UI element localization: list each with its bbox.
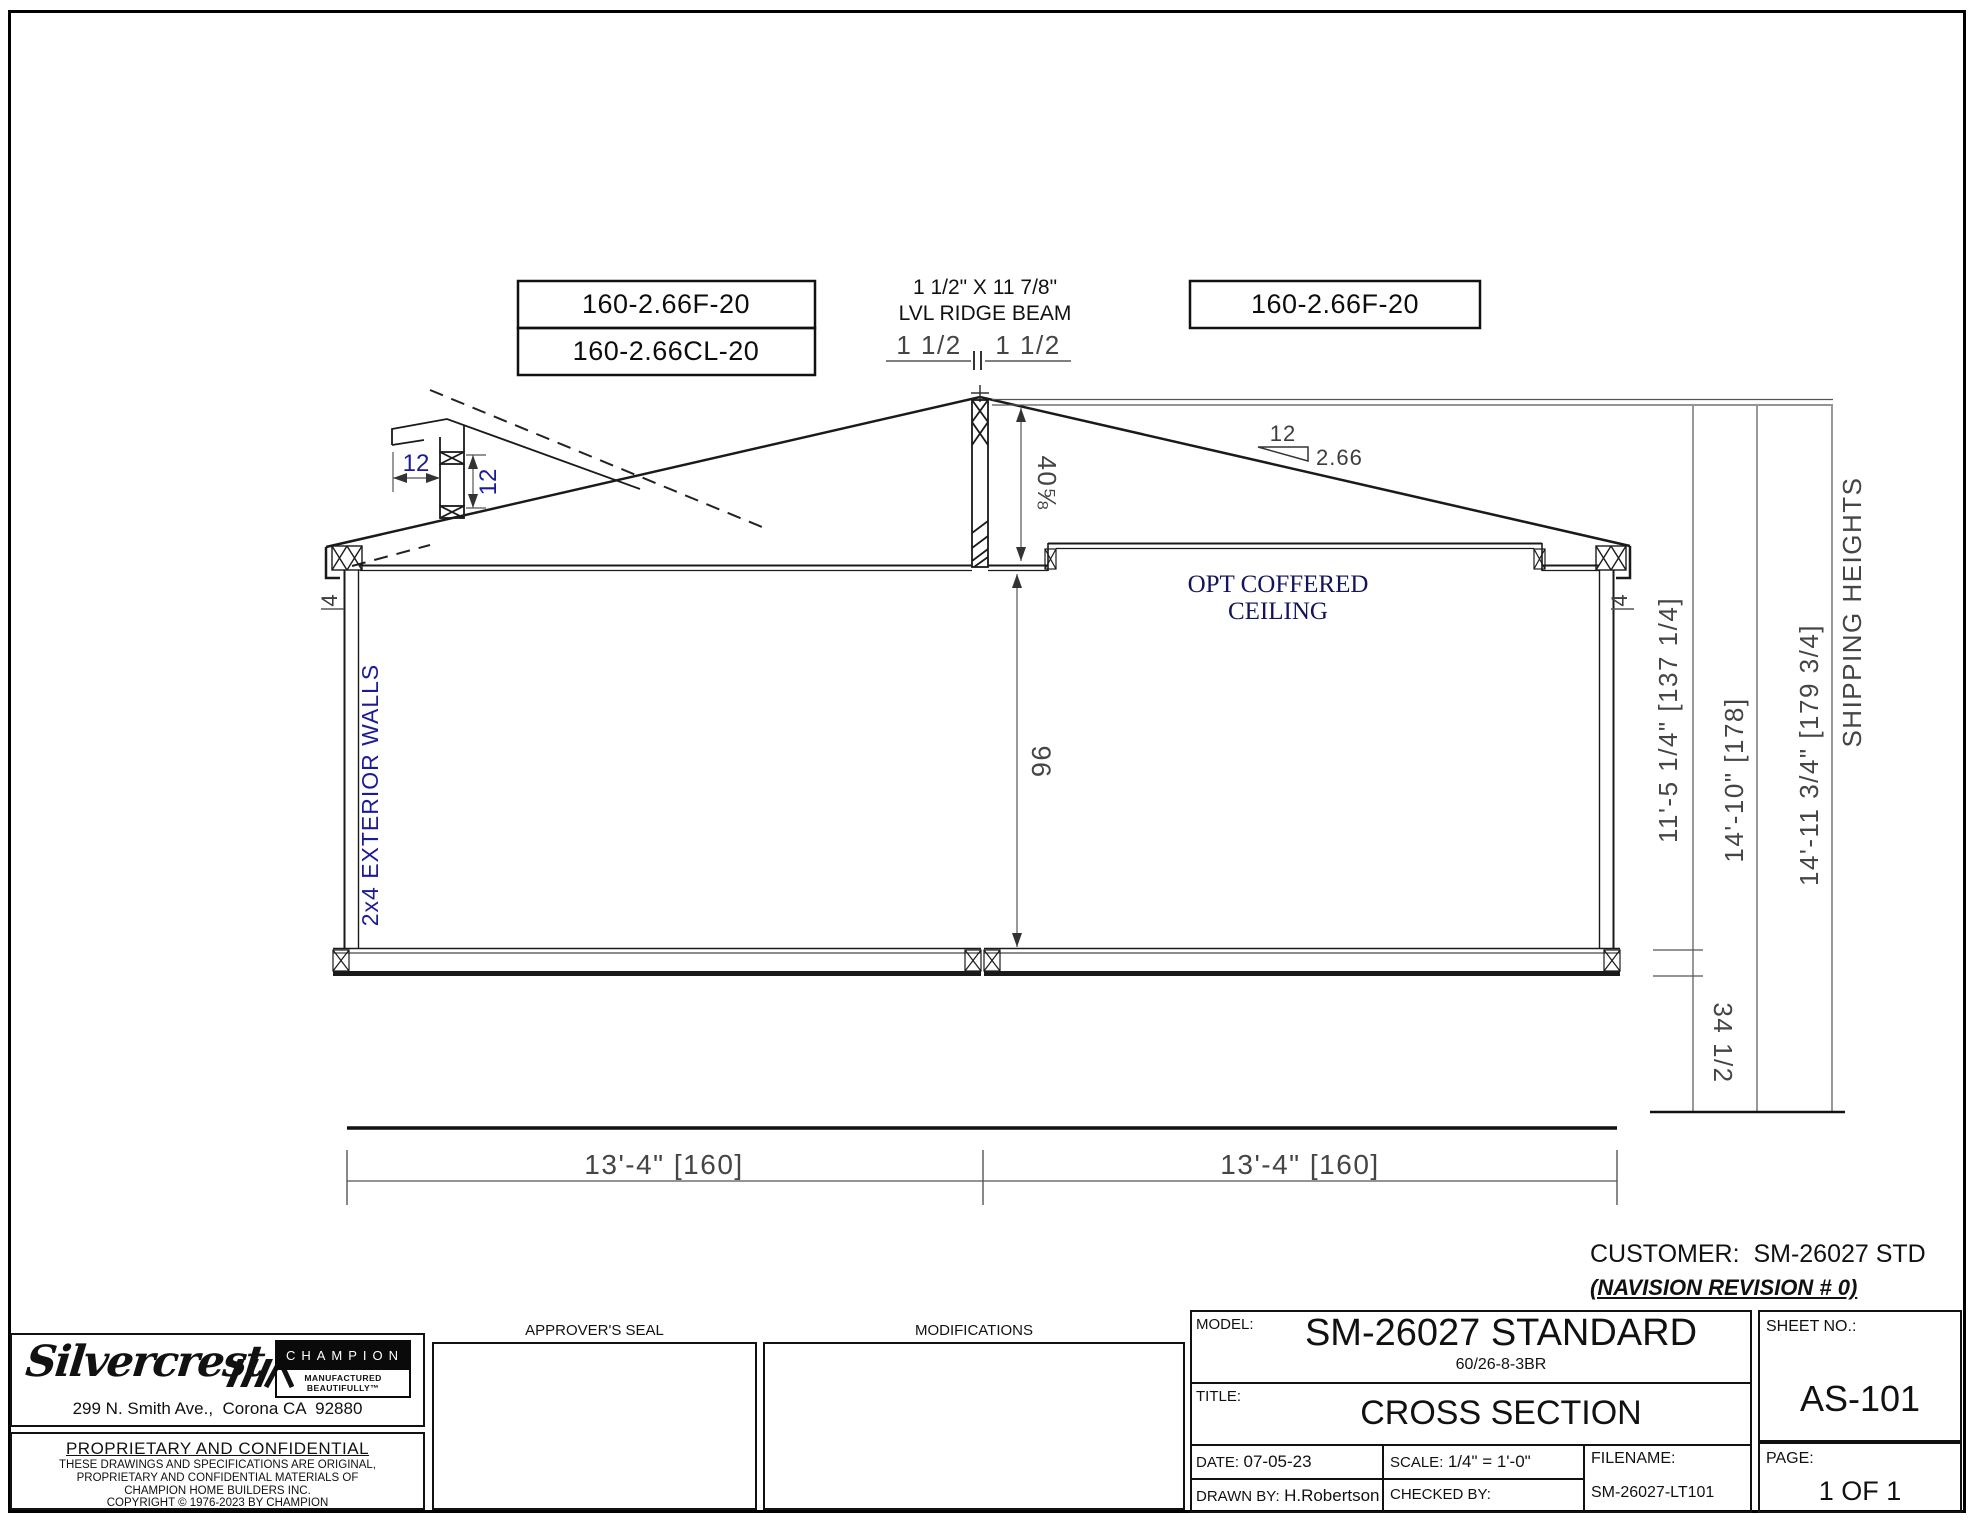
ridge-dim-right: 1 1/2 [995,330,1060,360]
slope-rise: 12 [1270,421,1296,446]
filename-label: FILENAME: [1591,1450,1675,1468]
truss-label-3: 160-2.66F-20 [1251,289,1419,319]
eave-dim-v: 12 [475,469,502,496]
modifications-label: MODIFICATIONS [763,1322,1185,1339]
model-value: SM-26027 STANDARD [1252,1312,1750,1355]
champion-logo-text: CHAMPION [275,1340,411,1370]
modifications-box [763,1342,1185,1510]
proprietary-line-4: COPYRIGHT © 1976-2023 BY CHAMPION [12,1497,423,1510]
drawn-by-label: DRAWN BY: [1196,1488,1280,1505]
wall-height-text: 96 [1026,745,1056,778]
customer-line: CUSTOMER: SM-26027 STD [1590,1240,1960,1269]
checked-by-label: CHECKED BY: [1390,1486,1491,1503]
sheet-no-box: SHEET NO.: AS-101 [1758,1310,1962,1442]
sheet-no-label: SHEET NO.: [1766,1318,1856,1336]
roof-slope-symbol: 12 2.66 [1258,421,1363,470]
truss-label-2: 160-2.66CL-20 [573,336,760,366]
page-value: 1 OF 1 [1760,1476,1960,1507]
date-label: DATE: [1196,1454,1239,1471]
wall-thickness-right: 4 [1607,593,1632,606]
date-value: 07-05-23 [1244,1452,1312,1471]
peak-height-dimension: 40⅝ [1016,408,1062,561]
eave-dimensions: 12 12 [393,450,502,508]
approver-seal-label: APPROVER'S SEAL [432,1322,757,1339]
cross-section-drawing: 160-2.66F-20 160-2.66CL-20 160-2.66F-20 … [0,0,1976,1240]
title-label: TITLE: [1196,1388,1241,1405]
dim-interior-height: 11'-5 1/4" [137 1/4] [1653,597,1683,843]
dim-width-left: 13'-4" [160] [584,1149,743,1180]
approver-seal-box [432,1342,757,1510]
dim-floor-height: 34 1/2 [1708,1002,1738,1083]
proprietary-line-3: CHAMPION HOME BUILDERS INC. [12,1485,423,1498]
model-title-box: MODEL: SM-26027 STANDARD 60/26-8-3BR TIT… [1190,1310,1752,1513]
wall-height-dimension: 96 [1012,574,1056,947]
roof-outline [326,397,1630,578]
navision-revision: (NAVISION REVISION # 0) [1590,1275,1960,1301]
eave-dim-h: 12 [403,450,430,477]
filename-value: SM-26027-LT101 [1591,1484,1714,1502]
floor-assembly [333,949,1620,974]
proprietary-box: PROPRIETARY AND CONFIDENTIAL THESE DRAWI… [10,1432,425,1510]
customer-note: CUSTOMER: SM-26027 STD (NAVISION REVISIO… [1590,1240,1960,1301]
page-box: PAGE: 1 OF 1 [1758,1442,1962,1513]
dim-shipping-height: 14'-11 3/4" [179 3/4] [1794,624,1824,886]
wall-thickness-left: 4 [317,593,342,606]
sheet-no-value: AS-101 [1760,1378,1960,1420]
ridge-beam-note: 1 1/2" X 11 7/8" LVL RIDGE BEAM 1 1/2 1 … [886,276,1071,370]
model-sub-value: 60/26-8-3BR [1252,1356,1750,1374]
width-dimensions: 13'-4" [160] 13'-4" [160] [347,1128,1617,1205]
proprietary-line-2: PROPRIETARY AND CONFIDENTIAL MATERIALS O… [12,1472,423,1485]
drawn-by-value: H.Robertson [1284,1486,1379,1505]
champion-tagline: MANUFACTURED BEAUTIFULLY™ [275,1370,411,1398]
scale-value: 1/4" = 1'-0" [1448,1452,1531,1471]
slope-run: 2.66 [1316,445,1363,470]
company-address: 299 N. Smith Ave., Corona CA 92880 [12,1399,423,1419]
truss-label-1: 160-2.66F-20 [582,289,750,319]
coffered-line2: CEILING [1228,598,1328,625]
scale-label: SCALE: [1390,1454,1443,1471]
title-value: CROSS SECTION [1252,1394,1750,1433]
coffered-ceiling-label: OPT COFFERED CEILING [1188,571,1369,625]
page-label: PAGE: [1766,1450,1814,1468]
ridge-dim-left: 1 1/2 [896,330,961,360]
champion-logo: CHAMPION MANUFACTURED BEAUTIFULLY™ [275,1340,411,1398]
ridge-note-size: 1 1/2" X 11 7/8" [913,276,1057,299]
coffered-line1: OPT COFFERED [1188,571,1369,598]
proprietary-line-1: THESE DRAWINGS AND SPECIFICATIONS ARE OR… [12,1459,423,1472]
dim-width-right: 13'-4" [160] [1220,1149,1379,1180]
height-dimension-lines [992,400,1833,1113]
exterior-wall-label: 2x4 EXTERIOR WALLS [357,664,383,927]
drawing-sheet: { "drawing": { "boxed_labels": ["160-2.6… [0,0,1976,1521]
exterior-walls [345,570,1614,948]
ridge-note-name: LVL RIDGE BEAM [899,302,1072,325]
model-label: MODEL: [1196,1316,1254,1333]
proprietary-heading: PROPRIETARY AND CONFIDENTIAL [12,1439,423,1459]
shipping-heights-label: SHIPPING HEIGHTS [1837,476,1867,747]
dim-overall-height: 14'-10" [178] [1719,697,1749,862]
ridge-post [972,400,988,567]
wall-thickness-dims: 4 4 [317,593,1634,609]
logo-box: Silvercrest CHAMPION MANUFACTURED BEAUTI… [10,1333,425,1427]
peak-height-text: 40⅝ [1032,455,1062,510]
